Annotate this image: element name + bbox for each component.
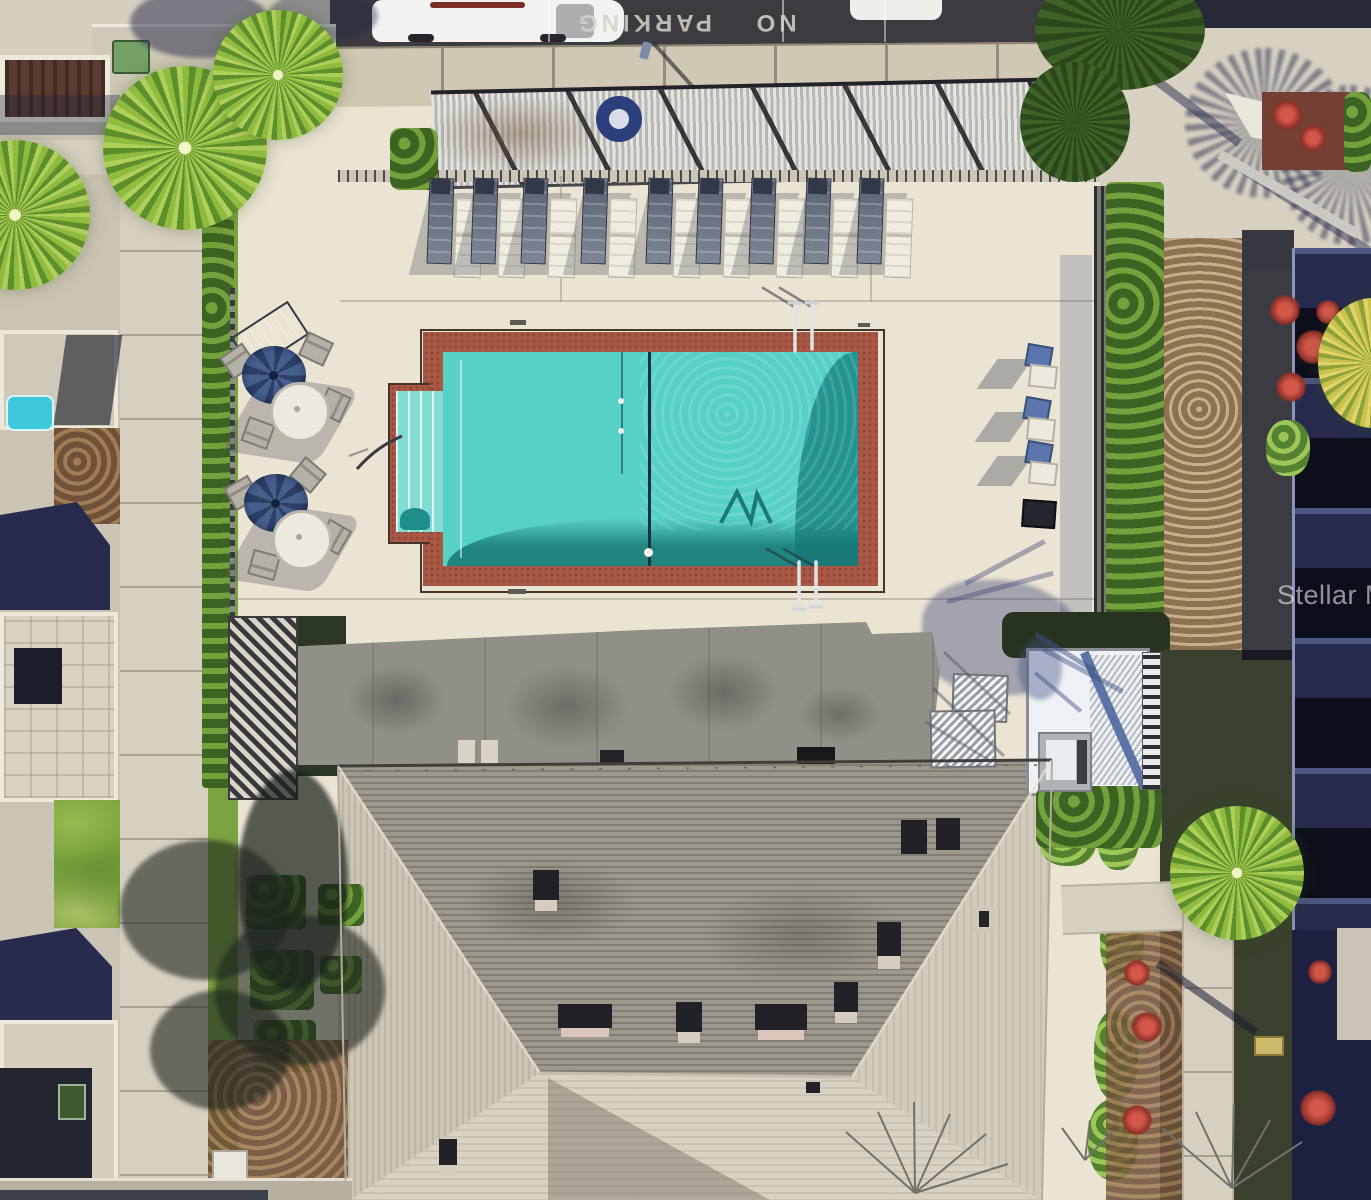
green-dumpster [112, 40, 150, 74]
shrub [390, 128, 438, 190]
slatted-platform [929, 709, 996, 768]
lawn-patch [54, 800, 120, 928]
dark-lounger [581, 178, 609, 265]
car-wheel [408, 34, 434, 42]
red-shrub [1300, 125, 1326, 151]
red-shrub [1276, 372, 1306, 402]
no-parking-pavement-text: NO PARKING [575, 8, 797, 36]
palm-tree [213, 10, 343, 140]
pool-fence-north [338, 170, 1100, 182]
lounge-chair-pair [697, 178, 753, 280]
deck-joint-line [340, 300, 1096, 302]
divider-float [618, 428, 624, 434]
white-lounger [498, 198, 528, 279]
roof-vent [533, 870, 559, 900]
white-lounger [884, 198, 914, 279]
trail-sign [1254, 1036, 1284, 1056]
chair-back [1024, 343, 1054, 370]
car-wheel [540, 34, 566, 42]
dark-lounger [521, 178, 549, 265]
red-shrub [1300, 1090, 1336, 1126]
chair-back [1022, 396, 1052, 423]
patio-table-set [224, 458, 374, 608]
white-lounger [608, 198, 638, 279]
lounge-chair-pair [805, 178, 861, 280]
palm-shadow-on-shed-blob [1018, 638, 1062, 700]
deck-joint-line [560, 176, 562, 302]
gravel-path-east [1164, 238, 1242, 666]
deck-equipment-dark [600, 750, 624, 764]
lounge-chair-pair [750, 178, 806, 280]
lounge-chair-pair [858, 178, 914, 280]
patio-chair [240, 416, 275, 450]
deck-equipment-light [458, 740, 475, 763]
roof-vent-small [806, 1082, 820, 1093]
parking-stall-line [548, 0, 550, 42]
bushes [1344, 92, 1371, 172]
white-lounger [776, 198, 806, 279]
parked-car-partial [850, 0, 942, 20]
poolside-chair [1000, 396, 1058, 444]
bottom-road-dark [0, 1190, 268, 1200]
hedge-below-shed [1036, 786, 1162, 848]
mls-watermark: Stellar MLS [1277, 580, 1371, 611]
deck-equipment-light [481, 740, 498, 763]
patio-table [272, 510, 332, 570]
patio-chair [298, 331, 334, 366]
red-shrub [1272, 100, 1302, 130]
water-ripples [640, 352, 858, 530]
chair-seat [1028, 364, 1058, 390]
roof-vent [877, 922, 901, 956]
depth-marker [858, 323, 870, 327]
roof-vent [676, 1002, 702, 1032]
shed-ladder-fence [1142, 652, 1161, 790]
lounge-chair-pair [472, 178, 528, 280]
red-shrub [1270, 295, 1300, 325]
lane-rope [648, 352, 651, 566]
east-roof-band-south [1337, 928, 1371, 1040]
roof-vent [901, 820, 927, 854]
bright-bush [1266, 420, 1310, 476]
shadow-streak-left [0, 95, 120, 135]
fence-shade-band [1060, 255, 1092, 655]
roof-vent [834, 982, 858, 1012]
roof-vent [439, 1139, 457, 1165]
palm-fronds-overhang [1020, 62, 1130, 182]
poolside-chair [1002, 440, 1060, 488]
red-shrub [1122, 1105, 1152, 1135]
shed-opening-dark [1077, 740, 1087, 784]
hedge-east [1106, 182, 1164, 668]
aerial-photo: NO PARKING [0, 0, 1371, 1200]
lane-rope-float [644, 548, 653, 557]
dark-lounger [471, 178, 499, 265]
unit-patio [0, 612, 118, 802]
white-lounger [831, 198, 861, 279]
parking-stall-line [884, 0, 886, 42]
white-lounger [723, 198, 753, 279]
car-roof-trim [430, 2, 525, 8]
divider-float [618, 398, 624, 404]
clubhouse-shadow [260, 620, 942, 765]
poolside-chair [1002, 343, 1060, 391]
tree-shadow [150, 990, 290, 1110]
depth-marker [508, 589, 526, 594]
red-shrub [1124, 960, 1150, 986]
red-shrub [1308, 960, 1332, 984]
white-lounger [454, 198, 484, 279]
dark-lounger [804, 178, 832, 265]
utility-box-white [212, 1150, 248, 1180]
dark-lounger [696, 178, 724, 265]
white-lounger [548, 198, 578, 279]
lounge-chair-pair [647, 178, 703, 280]
deck-joint-line [870, 182, 872, 302]
white-lounger [673, 198, 703, 279]
roof-vent-large [558, 1004, 612, 1028]
dark-lounger [749, 178, 777, 265]
depth-marker [510, 320, 526, 325]
spa-blue [6, 395, 54, 431]
lounge-chair-pair [582, 178, 638, 280]
lounge-chair-pair [428, 178, 484, 280]
dark-lounger [427, 178, 455, 265]
roof-vent [936, 818, 960, 850]
steps-shadow [400, 508, 430, 530]
chair-back [1024, 440, 1054, 467]
shed-opening-inner [1046, 740, 1076, 780]
chair-seat [1026, 417, 1056, 443]
patio-doorway-dark [14, 648, 62, 704]
chair-seat [1028, 461, 1058, 487]
lounge-chair-pair [522, 178, 578, 280]
roof-vent [973, 906, 995, 932]
red-shrub [1132, 1012, 1162, 1042]
palm-tree-se [1170, 806, 1304, 940]
patio-table [270, 382, 330, 442]
small-green-sign [58, 1084, 86, 1120]
life-ring [596, 96, 642, 142]
dark-lounger [646, 178, 674, 265]
deck-equipment-dark [797, 747, 835, 764]
pool-divider-line [621, 352, 623, 474]
poolside-table-dark [1021, 499, 1057, 529]
pool-fence-east [1094, 186, 1106, 664]
walkway-vertical-se [1182, 905, 1234, 1200]
roof-vent-large [755, 1004, 807, 1030]
step-shelf-line [460, 360, 462, 558]
